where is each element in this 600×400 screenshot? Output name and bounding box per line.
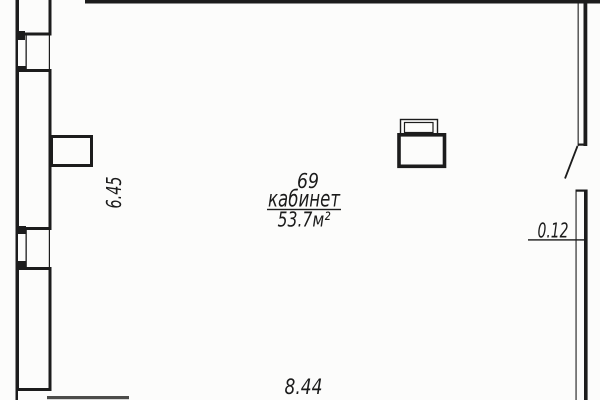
- bottom-wall-partial: [47, 396, 129, 399]
- dimension-partition: 0.12: [538, 219, 569, 243]
- floor-plan-drawing: 69 кабинет 53.7м² 6.45 0.12 8.44: [0, 0, 600, 400]
- right-partition-upper-outer-line: [584, 0, 588, 146]
- room-area: 53.7м²: [278, 208, 331, 232]
- window-upper-glazing-line: [26, 34, 27, 70]
- right-partition-lower-inner-line: [576, 190, 577, 400]
- wall-step: [17, 226, 26, 234]
- equipment-body: [399, 135, 445, 167]
- window-upper-inner-face-line: [49, 34, 50, 70]
- right-partition-upper-end-cap: [578, 144, 587, 146]
- left-wall-block-lower: [18, 269, 51, 390]
- door-leaf-line: [565, 146, 578, 179]
- left-wall-block-upper: [18, 0, 51, 34]
- wall-pier: [52, 137, 92, 166]
- window-lower-inner-face-line: [49, 230, 50, 267]
- top-wall: [85, 0, 600, 4]
- wall-step: [17, 31, 25, 40]
- right-partition-lower-outer-line: [584, 190, 588, 400]
- floor-plan-canvas: 69 кабинет 53.7м² 6.45 0.12 8.44: [0, 0, 600, 400]
- equipment-back-panel-inner: [405, 123, 434, 133]
- left-wall-block-middle: [18, 71, 51, 229]
- window-lower-glazing-line: [26, 230, 27, 267]
- dimension-bottom-wall: 8.44: [285, 375, 323, 399]
- dimension-left-wall: 6.45: [102, 177, 126, 209]
- right-partition-upper-inner-line: [578, 0, 579, 146]
